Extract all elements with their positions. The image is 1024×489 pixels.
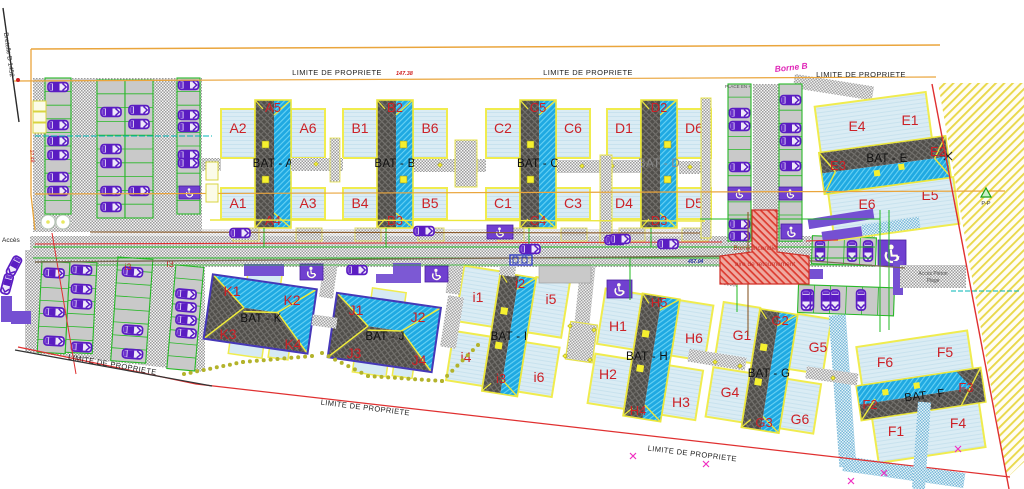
svg-text:G6: G6 <box>791 411 810 427</box>
svg-text:C3: C3 <box>564 195 582 211</box>
svg-text:BAT - G: BAT - G <box>748 368 791 380</box>
svg-text:F4: F4 <box>950 415 967 431</box>
svg-text:G4: G4 <box>721 384 740 400</box>
svg-text:Plage: Plage <box>927 278 940 284</box>
svg-text:H6: H6 <box>685 330 703 346</box>
svg-text:A6: A6 <box>299 120 316 136</box>
svg-text:E4: E4 <box>848 118 865 134</box>
svg-text:F3: F3 <box>958 380 973 395</box>
svg-text:F1: F1 <box>888 423 905 439</box>
svg-text:A3: A3 <box>299 195 316 211</box>
svg-text:B4: B4 <box>351 195 368 211</box>
svg-text:147.38: 147.38 <box>396 71 414 77</box>
svg-text:E3: E3 <box>830 158 846 173</box>
svg-text:G1: G1 <box>733 327 752 343</box>
svg-text:457.04: 457.04 <box>687 259 704 265</box>
svg-text:i1: i1 <box>473 289 484 305</box>
svg-text:H5: H5 <box>651 295 668 310</box>
svg-text:Accès Piéton: Accès Piéton <box>918 271 947 277</box>
svg-text:D6: D6 <box>685 120 703 136</box>
svg-text:BAT - E: BAT - E <box>866 153 907 165</box>
svg-text:F2: F2 <box>862 397 877 412</box>
svg-text:B1: B1 <box>351 120 368 136</box>
svg-text:B5: B5 <box>421 195 438 211</box>
svg-text:H3: H3 <box>672 394 690 410</box>
svg-text:i2: i2 <box>515 276 525 291</box>
svg-text:aire de retournement: aire de retournement <box>735 261 796 268</box>
svg-text:A1: A1 <box>229 195 246 211</box>
svg-text:G5: G5 <box>809 339 828 355</box>
svg-text:i5: i5 <box>546 291 557 307</box>
svg-text:P-P: P-P <box>981 201 991 207</box>
svg-text:F6: F6 <box>877 354 894 370</box>
svg-text:C2: C2 <box>494 120 512 136</box>
svg-text:A2: A2 <box>229 120 246 136</box>
svg-text:K4: K4 <box>284 336 301 352</box>
svg-text:C6: C6 <box>564 120 582 136</box>
svg-text:K1: K1 <box>223 283 240 299</box>
svg-text:i6: i6 <box>534 369 545 385</box>
svg-text:BAT - H: BAT - H <box>626 351 668 363</box>
svg-text:G2: G2 <box>771 313 788 328</box>
svg-text:Borne incendie: Borne incendie <box>733 245 777 252</box>
svg-text:C5: C5 <box>530 100 547 115</box>
svg-text:D5: D5 <box>685 195 703 211</box>
svg-text:BAT - D: BAT - D <box>638 158 680 170</box>
svg-text:BAT - I: BAT - I <box>491 331 528 343</box>
svg-text:27.48: 27.48 <box>28 150 35 163</box>
svg-text:C1: C1 <box>494 195 512 211</box>
svg-text:J3: J3 <box>347 345 362 361</box>
svg-text:LIMITE DE PROPRIETE: LIMITE DE PROPRIETE <box>816 70 906 79</box>
svg-text:LIMITE DE PROPRIETE: LIMITE DE PROPRIETE <box>543 68 633 77</box>
svg-text:E5: E5 <box>921 187 938 203</box>
svg-text:E1: E1 <box>901 112 918 128</box>
svg-text:J1: J1 <box>349 302 364 318</box>
svg-text:D2: D2 <box>651 100 668 115</box>
svg-text:LIMITE DE PROPRIETE: LIMITE DE PROPRIETE <box>292 68 382 77</box>
svg-text:B2: B2 <box>387 100 403 115</box>
svg-text:D1: D1 <box>615 120 633 136</box>
svg-text:H1: H1 <box>609 318 627 334</box>
svg-text:G3: G3 <box>755 415 772 430</box>
svg-text:PLACE EN +: PLACE EN + <box>725 84 752 89</box>
svg-text:J4: J4 <box>412 352 427 368</box>
svg-text:BAT - C: BAT - C <box>517 158 559 170</box>
svg-text:J2: J2 <box>411 309 426 325</box>
svg-text:Accès: Accès <box>2 237 20 244</box>
svg-text:i3: i3 <box>124 262 131 272</box>
svg-text:F5: F5 <box>937 344 954 360</box>
svg-text:K3: K3 <box>219 326 236 342</box>
svg-text:A5: A5 <box>265 100 281 115</box>
svg-text:D4: D4 <box>615 195 633 211</box>
svg-text:E6: E6 <box>858 196 875 212</box>
svg-text:i3: i3 <box>496 371 506 386</box>
svg-text:BAT - B: BAT - B <box>374 158 415 170</box>
svg-text:H4: H4 <box>630 403 647 418</box>
svg-text:i4: i4 <box>461 349 472 365</box>
svg-text:B6: B6 <box>421 120 438 136</box>
svg-text:K2: K2 <box>283 292 300 308</box>
svg-text:BAT - J: BAT - J <box>365 331 404 343</box>
svg-text:BAT - A: BAT - A <box>253 158 294 170</box>
svg-text:BAT - K: BAT - K <box>240 313 281 325</box>
svg-text:H2: H2 <box>599 366 617 382</box>
